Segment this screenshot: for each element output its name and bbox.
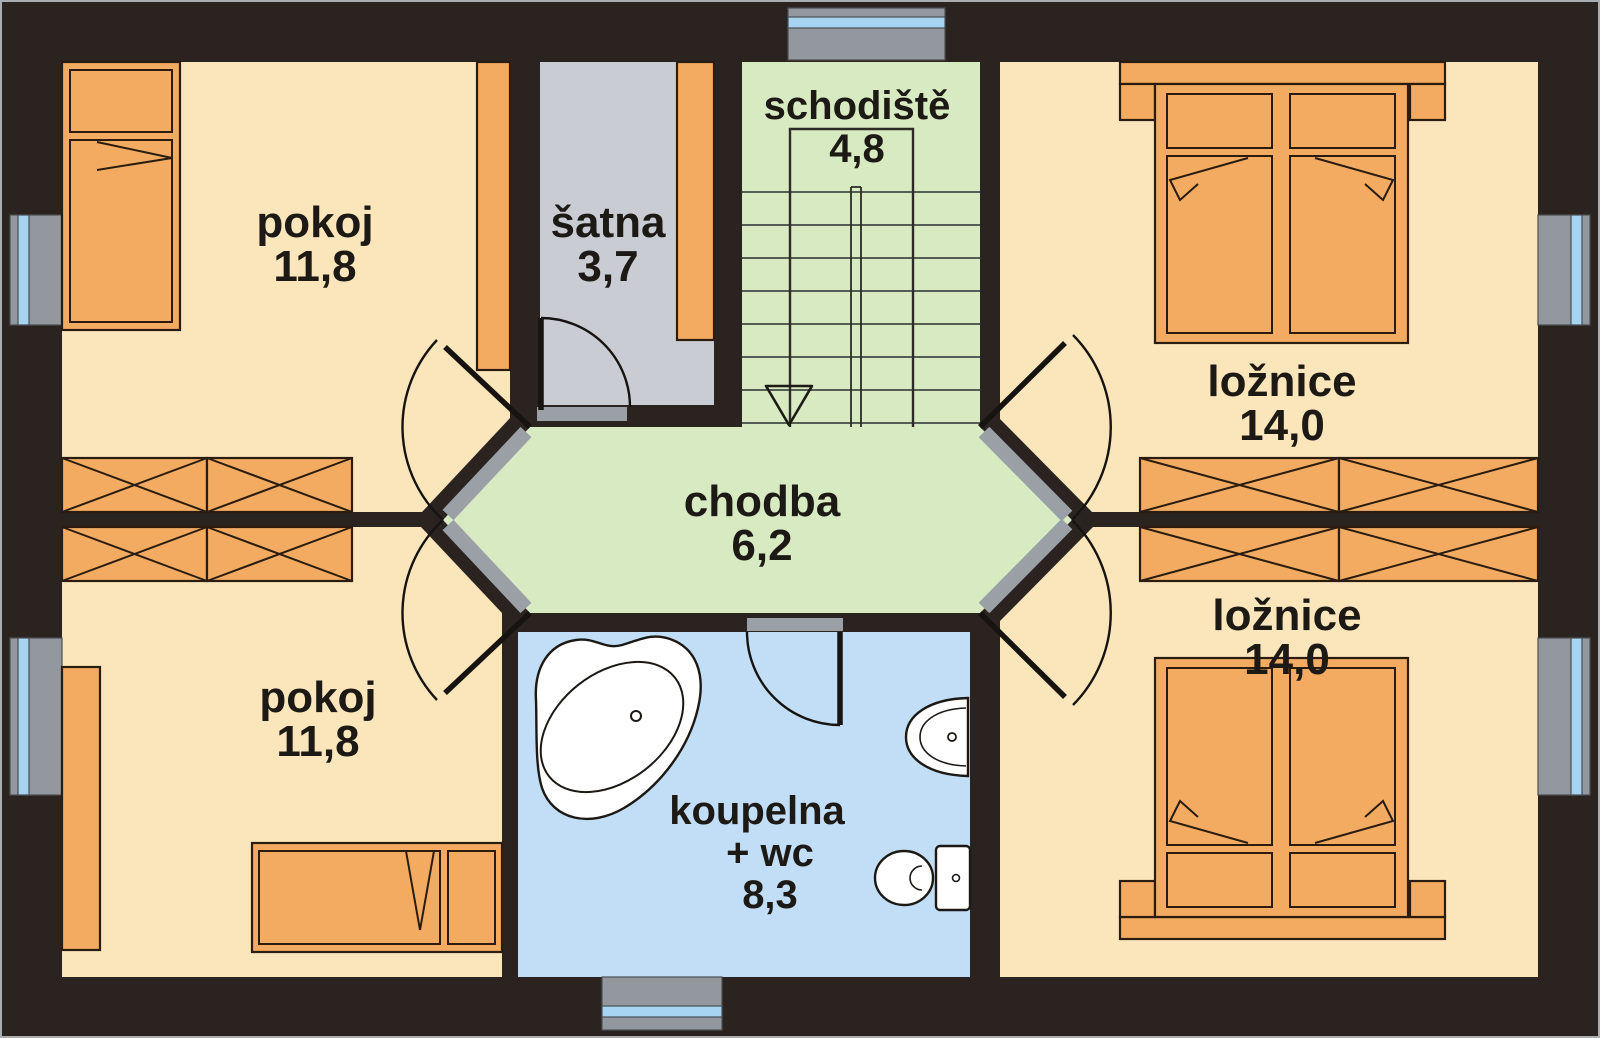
room-area-chodba: 6,2 [731,521,792,570]
bed-headboard-wing [1410,84,1445,120]
bed-headboard [1120,62,1445,84]
bed-mattress [1290,156,1395,333]
window-left-upper [10,215,62,325]
door-threshold [537,407,627,421]
bed-mattress [1167,668,1272,845]
bed-pillow [1167,853,1272,907]
window-left-lower [10,638,62,795]
room-label-loznice-top-right: ložnice [1207,357,1356,406]
window-glass [602,1006,722,1017]
window-glass [18,215,29,325]
closet-row-top-right [1140,458,1538,512]
room-label-pokoj-bottom-left: pokoj [259,673,376,722]
room-area-satna: 3,7 [577,242,638,291]
room-area-pokoj-top-left: 11,8 [273,242,356,291]
bed-mattress [70,140,172,322]
bed-headboard-wing [1120,84,1155,120]
room-label-koupelna-wc: + wc [726,831,814,875]
wardrobe-strip-top-left [477,62,510,370]
bed-mattress [1167,156,1272,333]
bed-double-bottom-right [1120,658,1445,939]
room-label-chodba: chodba [684,477,841,526]
wardrobe-strip-satna [677,62,714,340]
door-threshold [747,618,843,631]
floor-plan: pokoj 11,8 šatna 3,7 schodiště 4,8 ložni… [0,0,1600,1038]
window-right-lower [1538,638,1590,795]
bed-headboard-wing [1410,881,1445,917]
closet-row-top-left [62,458,352,512]
room-label-schodiste: schodiště [764,84,951,128]
closet-row-bottom-left [62,527,352,581]
window-glass [788,17,945,28]
room-area-koupelna: 8,3 [742,873,798,917]
bed-single-top-left [62,62,180,330]
bed-headboard [1120,917,1445,939]
bed-double-top-right [1120,62,1445,343]
bed-headboard-wing [1120,881,1155,917]
room-label-satna: šatna [551,198,666,247]
window-sill [788,8,945,60]
bed-pillow [1290,94,1395,148]
room-label-pokoj-top-left: pokoj [256,198,373,247]
window-bottom [602,977,722,1030]
window-top [788,8,945,60]
bed-pillow [448,851,495,944]
room-label-koupelna: koupelna [669,789,845,833]
room-area-schodiste: 4,8 [829,127,885,171]
room-area-loznice-top-right: 14,0 [1239,401,1325,450]
room-area-loznice-bottom-right: 14,0 [1244,635,1330,684]
wardrobe-strip-bottom-left [62,667,100,950]
bed-pillow [1167,94,1272,148]
window-sill [602,977,722,1030]
room-area-pokoj-bottom-left: 11,8 [276,717,359,766]
bed-pillow [1290,853,1395,907]
window-glass [1571,638,1582,795]
bed-mattress [1290,668,1395,845]
floor-plan-canvas: pokoj 11,8 šatna 3,7 schodiště 4,8 ložni… [0,0,1600,1038]
window-glass [1571,215,1582,325]
closet-row-bottom-right [1140,527,1538,581]
room-label-loznice-bottom-right: ložnice [1212,591,1361,640]
bed-mattress [259,851,440,944]
bed-single-bottom-left [252,843,502,952]
window-right-upper [1538,215,1590,325]
window-glass [18,638,29,795]
bed-pillow [70,70,172,132]
toilet-bowl [875,851,933,905]
